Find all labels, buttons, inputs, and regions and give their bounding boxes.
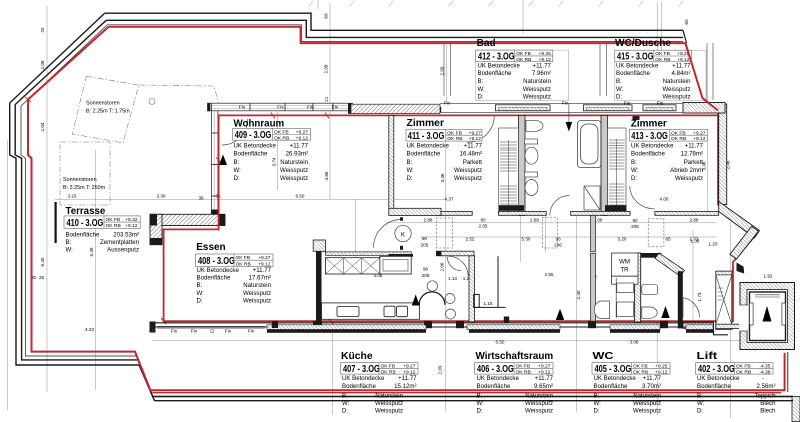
svg-text:Naturstein: Naturstein [523,78,551,85]
svg-text:Fix: Fix [171,328,178,334]
svg-text:+9.12: +9.12 [693,136,706,142]
svg-text:205: 205 [422,273,430,278]
svg-text:UK Betondecke: UK Betondecke [234,143,277,150]
svg-text:Naturstein: Naturstein [633,392,661,399]
svg-text:Weissputz: Weissputz [454,167,482,174]
svg-text:1.38: 1.38 [691,239,700,244]
svg-text:405 - 3.OG: 405 - 3.OG [595,364,632,375]
svg-text:2.88: 2.88 [424,217,433,222]
svg-text:OK RB: OK RB [274,136,289,142]
svg-text:Weissputz: Weissputz [375,400,403,407]
svg-text:402 - 3.OG: 402 - 3.OG [698,364,735,375]
svg-text:UK Betondecke: UK Betondecke [477,375,520,382]
svg-text:Bad: Bad [477,38,496,49]
svg-text:Fix: Fix [307,104,314,110]
svg-text:K: K [401,232,405,239]
svg-text:2.88: 2.88 [690,217,699,222]
svg-text:Fix: Fix [277,104,284,110]
svg-text:OK FB: OK FB [516,51,531,57]
svg-text:409 - 3.OG: 409 - 3.OG [235,130,272,141]
svg-text:3.23: 3.23 [68,194,77,199]
svg-text:408 - 3.OG: 408 - 3.OG [198,256,235,267]
svg-text:Weissputz: Weissputz [663,94,691,101]
svg-text:+11.77: +11.77 [290,143,309,150]
svg-text:Weissputz: Weissputz [525,400,553,407]
svg-text:+9.27: +9.27 [538,364,551,370]
svg-text:Naturstein: Naturstein [663,78,691,85]
svg-text:15.12m²: 15.12m² [394,383,416,390]
svg-text:W:: W: [631,167,639,174]
svg-text:12.78m²: 12.78m² [681,151,703,158]
svg-text:WC/Dusche: WC/Dusche [615,38,671,49]
svg-text:Sonnenstoren: Sonnenstoren [86,101,120,107]
svg-text:D:: D: [697,408,703,415]
svg-text:B:: B: [342,392,348,399]
svg-text:WC: WC [593,351,615,362]
svg-text:UK Betondecke: UK Betondecke [594,375,637,382]
svg-text:OK FB: OK FB [736,364,751,370]
svg-text:90: 90 [423,267,429,272]
svg-text:OK FB: OK FB [655,51,670,57]
svg-text:D:: D: [594,408,600,415]
svg-text:1.13: 1.13 [448,276,457,281]
svg-text:B: 2.25m T: 1.75m: B: 2.25m T: 1.75m [86,109,130,115]
svg-text:Fix: Fix [657,100,664,106]
svg-text:411 - 3.OG: 411 - 3.OG [408,131,445,142]
svg-text:206: 206 [554,243,562,248]
svg-text:3.30: 3.30 [157,194,166,199]
svg-text:+9.27: +9.27 [469,130,482,136]
svg-text:W:: W: [234,167,242,174]
svg-text:+9.12: +9.12 [469,136,482,142]
svg-text:+9.25: +9.25 [539,51,552,57]
svg-text:+9.32: +9.32 [125,217,138,223]
svg-text:2.09: 2.09 [438,365,443,374]
svg-text:Fix: Fix [239,104,246,110]
svg-text:205: 205 [421,242,429,247]
svg-text:7.96m²: 7.96m² [532,70,551,77]
svg-text:B:: B: [197,282,203,289]
svg-text:+9.12: +9.12 [125,223,138,229]
svg-text:Naturstein: Naturstein [375,392,403,399]
svg-text:D:: D: [407,175,413,182]
svg-text:UK Betondecke: UK Betondecke [616,62,659,69]
svg-text:407 - 3.OG: 407 - 3.OG [343,364,380,375]
svg-text:OK FB: OK FB [236,255,251,261]
svg-text:90: 90 [555,236,561,241]
svg-text:Weissputz: Weissputz [243,290,271,297]
svg-text:Weissputz: Weissputz [375,408,403,415]
svg-text:OK FB: OK FB [106,217,121,223]
svg-text:D:: D: [342,408,348,415]
svg-text:415 - 3.OG: 415 - 3.OG [617,52,654,63]
svg-text:D:: D: [477,408,483,415]
svg-text:2.55: 2.55 [545,272,554,277]
svg-text:3.20: 3.20 [618,236,627,241]
svg-text:Parkett: Parkett [684,159,704,166]
svg-text:W:: W: [66,247,74,254]
svg-text:60: 60 [684,19,689,25]
svg-text:+11.77: +11.77 [253,267,272,274]
svg-text:Zementplatten: Zementplatten [100,239,139,246]
svg-text:Weissputz: Weissputz [280,167,308,174]
svg-text:3.70m²: 3.70m² [642,383,661,390]
svg-text:Wirtschaftsraum: Wirtschaftsraum [476,351,554,362]
svg-text:B:: B: [631,159,637,166]
svg-text:UK Betondecke: UK Betondecke [697,375,740,382]
svg-text:Parkett: Parkett [463,159,483,166]
svg-text:Aussenputz: Aussenputz [107,247,139,254]
svg-text:Weissputz: Weissputz [523,86,551,93]
svg-text:+11.77: +11.77 [672,62,691,69]
svg-text:2.05: 2.05 [479,224,488,229]
svg-text:2.06: 2.06 [440,262,445,271]
svg-text:Weissputz: Weissputz [280,175,308,182]
svg-text:+11.77: +11.77 [685,143,704,150]
svg-text:Naturstein: Naturstein [280,159,308,166]
svg-text:Teppich: Teppich [754,392,775,399]
svg-text:WM: WM [619,259,630,266]
svg-text:Fix: Fix [225,328,232,334]
svg-text:6.50: 6.50 [496,340,505,345]
svg-text:Fix: Fix [562,100,569,106]
svg-text:UK Betondecke: UK Betondecke [197,267,240,274]
svg-text:90: 90 [632,218,638,223]
svg-text:4.23: 4.23 [85,327,94,332]
svg-text:+11.77: +11.77 [533,62,552,69]
svg-text:Bodenfläche: Bodenfläche [616,70,650,77]
svg-text:W:: W: [477,400,485,407]
svg-text:B:: B: [594,392,600,399]
svg-text:2.68: 2.68 [530,217,539,222]
svg-text:Bodenfläche: Bodenfläche [66,231,100,238]
svg-text:OK RB: OK RB [447,136,462,142]
svg-text:OK FB: OK FB [671,130,686,136]
svg-text:+9.12: +9.12 [296,136,309,142]
svg-text:B:: B: [478,78,484,85]
svg-text:60: 60 [324,13,329,19]
svg-text:Blech: Blech [760,408,775,415]
svg-text:UK Betondecke: UK Betondecke [342,375,385,382]
svg-text:+9.27: +9.27 [403,364,416,370]
svg-text:5.30: 5.30 [522,236,531,241]
svg-text:B:: B: [697,392,703,399]
svg-text:Weissputz: Weissputz [663,86,691,93]
svg-text:25: 25 [40,27,45,33]
svg-text:B:: B: [234,159,240,166]
svg-text:+11.77: +11.77 [398,375,417,382]
svg-text:OK FB: OK FB [274,129,289,135]
svg-text:Fix: Fix [624,100,631,106]
svg-text:W:: W: [197,290,205,297]
svg-text:B:: B: [616,78,622,85]
svg-text:Bodenfläche: Bodenfläche [342,383,376,390]
svg-text:W:: W: [697,400,705,407]
svg-text:Weissputz: Weissputz [525,408,553,415]
svg-text:-: - [762,375,764,382]
svg-text:UK Betondecke: UK Betondecke [478,62,521,69]
svg-text:UK Betondecke: UK Betondecke [631,143,674,150]
svg-text:413 - 3.OG: 413 - 3.OG [631,131,668,142]
svg-text:W:: W: [478,86,486,93]
svg-text:W:: W: [594,400,602,407]
svg-text:2.52: 2.52 [466,236,475,241]
svg-text:3.08: 3.08 [630,340,639,345]
svg-text:Bodenfläche: Bodenfläche [407,151,441,158]
svg-text:3.74: 3.74 [272,157,277,166]
svg-text:Essen: Essen [196,242,225,253]
svg-text:TR: TR [620,267,629,274]
svg-text:+9.25: +9.25 [655,364,668,370]
svg-text:Lift: Lift [697,351,718,362]
svg-text:90: 90 [422,236,428,241]
svg-text:65: 65 [665,236,671,241]
svg-text:Bodenfläche: Bodenfläche [478,70,512,77]
svg-text:Weissputz: Weissputz [633,408,661,415]
svg-text:+9.27: +9.27 [693,130,706,136]
svg-text:2.08: 2.08 [324,64,329,73]
svg-text:OK RB: OK RB [671,136,686,142]
svg-text:W:: W: [407,167,415,174]
svg-text:4.37: 4.37 [445,197,454,202]
svg-text:W:: W: [616,86,624,93]
svg-text:B:: B: [66,239,72,246]
svg-text:Fix: Fix [191,328,198,334]
svg-text:Küche: Küche [341,351,373,362]
svg-text:36: 36 [198,196,204,201]
svg-text:406 - 3.OG: 406 - 3.OG [477,364,514,375]
svg-text:2.40: 2.40 [576,290,581,299]
svg-text:+11.77: +11.77 [535,375,554,382]
svg-text:D:: D: [478,94,484,101]
svg-text:25: 25 [39,275,45,280]
svg-text:Blech: Blech [760,400,775,407]
svg-text:Bodenfläche: Bodenfläche [631,151,665,158]
svg-text:412 - 3.OG: 412 - 3.OG [478,52,515,63]
svg-text:9.65m²: 9.65m² [534,383,553,390]
svg-text:16.48m²: 16.48m² [460,151,482,158]
svg-text:Fix: Fix [248,328,255,334]
svg-text:B:: B: [407,159,413,166]
svg-text:B:: B: [477,392,483,399]
svg-text:OK FB: OK FB [633,364,648,370]
svg-text:Bodenfläche: Bodenfläche [234,151,268,158]
svg-text:Weissputz: Weissputz [675,175,703,182]
svg-text:1.15: 1.15 [484,301,493,306]
svg-text:17.67m²: 17.67m² [249,275,271,282]
svg-text:D:: D: [197,297,203,304]
svg-text:D:: D: [234,175,240,182]
svg-text:OK RB: OK RB [106,223,121,229]
svg-text:Weissputz: Weissputz [243,297,271,304]
svg-text:W:: W: [342,400,350,407]
svg-text:6.40: 6.40 [40,257,45,266]
svg-text:Terrasse: Terrasse [66,206,106,217]
svg-text:+11.77: +11.77 [643,375,662,382]
svg-text:Sonnenstoren: Sonnenstoren [63,177,97,183]
svg-text:Bodenfläche: Bodenfläche [594,383,628,390]
svg-text:Naturstein: Naturstein [243,282,271,289]
svg-text:Fix: Fix [444,100,451,106]
svg-text:90: 90 [480,217,486,222]
svg-text:Zimmer: Zimmer [631,118,667,129]
svg-text:D:: D: [616,94,622,101]
svg-text:4.66: 4.66 [324,171,329,180]
svg-text:B: 3.25m T: 250m: B: 3.25m T: 250m [63,185,106,191]
svg-text:1.73: 1.73 [697,292,702,301]
svg-text:3.46: 3.46 [440,173,445,182]
svg-text:4.00: 4.00 [660,197,669,202]
svg-text:OK FB: OK FB [447,130,462,136]
svg-text:Weissputz: Weissputz [523,94,551,101]
svg-text:2.04: 2.04 [40,122,45,131]
svg-text:410 - 3.OG: 410 - 3.OG [67,218,104,229]
svg-text:4.84m²: 4.84m² [672,70,691,77]
svg-text:+11.77: +11.77 [464,143,483,150]
svg-text:6.50: 6.50 [296,194,305,199]
svg-text:Naturstein: Naturstein [525,392,553,399]
svg-text:Abrieb 2mm: Abrieb 2mm [670,167,703,174]
svg-text:D:: D: [631,175,637,182]
svg-text:Wohnraum: Wohnraum [234,118,285,129]
svg-text:Fix: Fix [332,104,339,110]
svg-text:Zimmer: Zimmer [407,118,445,129]
svg-text:+9.27: +9.27 [296,129,309,135]
svg-text:Bodenfläche: Bodenfläche [697,383,731,390]
svg-text:Weissputz: Weissputz [633,400,661,407]
svg-text:1.20: 1.20 [709,242,718,247]
svg-text:UK Betondecke: UK Betondecke [407,143,450,150]
svg-text:+9.27: +9.27 [258,255,271,261]
svg-text:Bodenfläche: Bodenfläche [197,275,231,282]
svg-text:Bodenfläche: Bodenfläche [477,383,511,390]
svg-text:26.93m²: 26.93m² [286,151,308,158]
svg-text:OK FB: OK FB [381,364,396,370]
svg-text:205: 205 [631,224,639,229]
svg-text:OK FB: OK FB [516,364,531,370]
svg-text:2.08: 2.08 [40,60,45,69]
svg-text:1.92: 1.92 [764,274,773,279]
svg-text:Weissputz: Weissputz [454,175,482,182]
svg-text:21: 21 [324,96,329,102]
svg-text:5.49: 5.49 [89,247,94,256]
svg-text:-4.35: -4.35 [759,364,770,370]
svg-text:2.56m²: 2.56m² [757,383,776,390]
svg-text:203.53m²: 203.53m² [113,231,139,238]
